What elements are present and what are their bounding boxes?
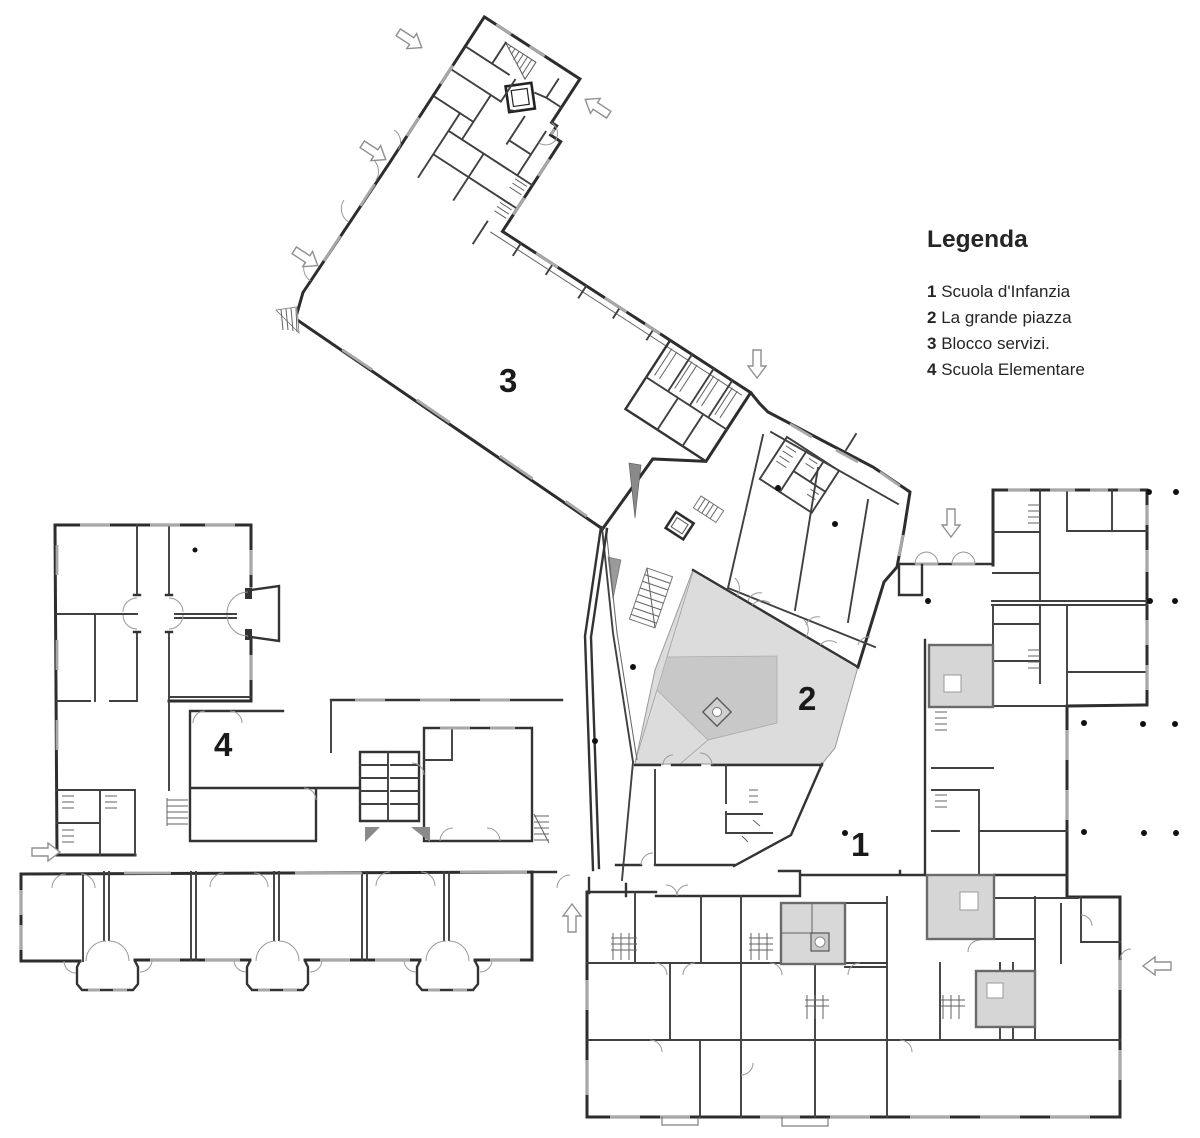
svg-text:3: 3 (499, 362, 517, 399)
svg-text:3 Blocco servizi.: 3 Blocco servizi. (927, 334, 1050, 353)
svg-text:2: 2 (798, 680, 816, 717)
svg-text:1: 1 (851, 826, 869, 863)
svg-text:4 Scuola Elementare: 4 Scuola Elementare (927, 360, 1085, 379)
svg-text:Legenda: Legenda (927, 226, 1028, 253)
svg-text:1 Scuola d'Infanzia: 1 Scuola d'Infanzia (927, 282, 1071, 301)
svg-text:4: 4 (214, 726, 233, 763)
svg-text:2 La grande piazza: 2 La grande piazza (927, 308, 1072, 327)
